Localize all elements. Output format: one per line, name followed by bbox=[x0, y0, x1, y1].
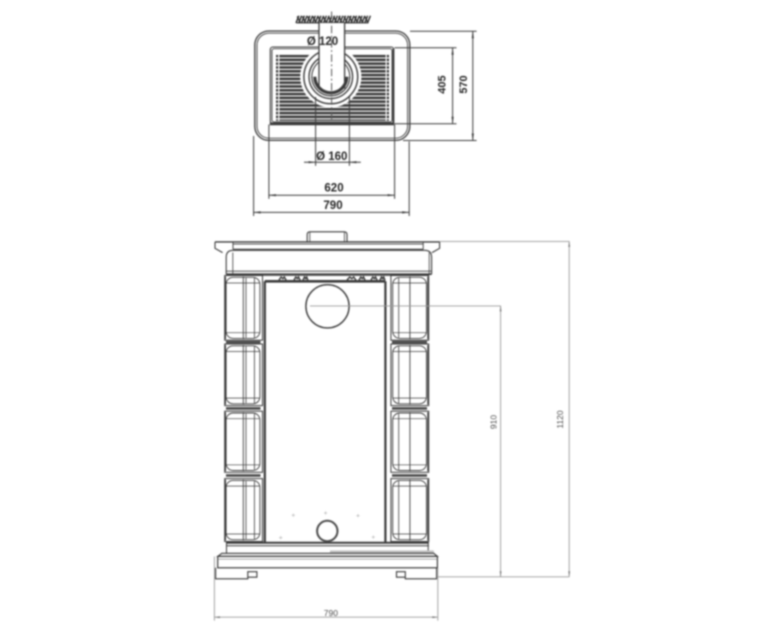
svg-text:405: 405 bbox=[437, 75, 449, 93]
svg-text:790: 790 bbox=[323, 200, 342, 212]
svg-text:570: 570 bbox=[458, 75, 470, 93]
svg-text:Ø 120: Ø 120 bbox=[307, 36, 338, 48]
svg-text:620: 620 bbox=[324, 183, 343, 195]
svg-text:790: 790 bbox=[324, 608, 338, 618]
svg-text:910: 910 bbox=[488, 415, 498, 429]
svg-text:Ø 160: Ø 160 bbox=[316, 151, 347, 163]
svg-text:1120: 1120 bbox=[555, 410, 565, 429]
